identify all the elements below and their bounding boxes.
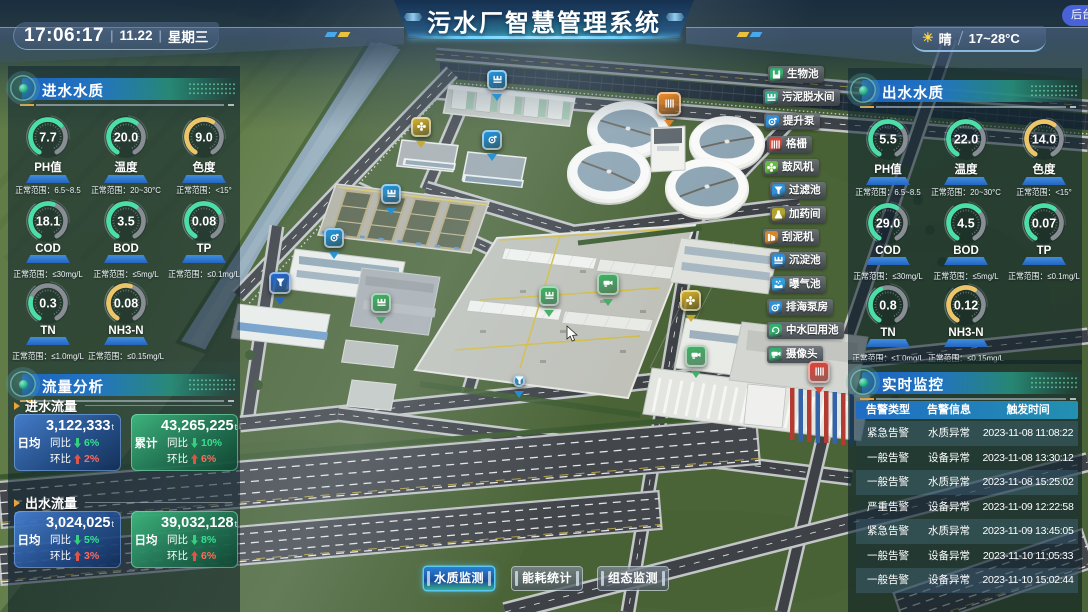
svg-text:0.07: 0.07 (1032, 217, 1056, 231)
svg-text:7.7: 7.7 (39, 131, 56, 145)
svg-text:29.0: 29.0 (876, 217, 900, 231)
svg-text:22.0: 22.0 (954, 133, 978, 147)
svg-text:4.5: 4.5 (957, 217, 974, 231)
svg-text:0.08: 0.08 (114, 297, 138, 311)
svg-text:0.08: 0.08 (192, 215, 216, 229)
svg-text:9.0: 9.0 (195, 131, 212, 145)
svg-text:5.5: 5.5 (879, 133, 896, 147)
svg-text:18.1: 18.1 (36, 215, 60, 229)
svg-text:0.8: 0.8 (879, 299, 896, 313)
svg-text:14.0: 14.0 (1032, 133, 1056, 147)
svg-text:20.0: 20.0 (114, 131, 138, 145)
svg-text:3.5: 3.5 (117, 215, 134, 229)
svg-text:0.3: 0.3 (39, 297, 56, 311)
svg-text:0.12: 0.12 (954, 299, 978, 313)
